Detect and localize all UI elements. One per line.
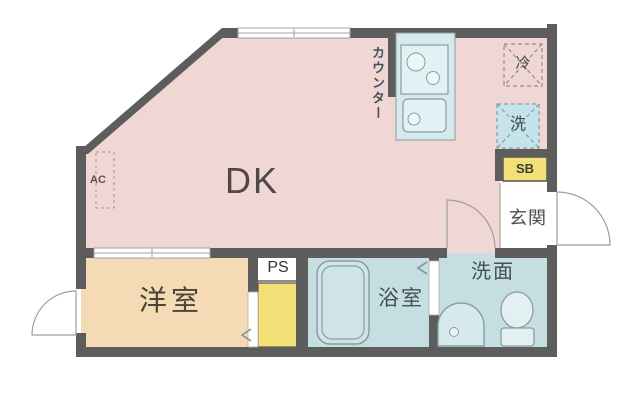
washbasin-drain: [450, 328, 459, 337]
washer-space-label: 洗: [503, 117, 533, 133]
stove-burner-small: [427, 72, 440, 85]
floor-plan-drawing: [0, 0, 640, 405]
washbasin: [438, 303, 484, 346]
washroom-label: 洗面: [458, 262, 528, 282]
kitchen-faucet: [408, 113, 420, 125]
western-room-label: 洋室: [123, 287, 219, 315]
dk-label: DK: [220, 163, 284, 199]
closet-door: [248, 292, 258, 347]
room-dk-floor: [81, 32, 552, 255]
kitchen-stove: [401, 45, 448, 94]
fridge-space-label: 冷: [508, 56, 538, 71]
counter-label: カウンター: [368, 46, 387, 142]
ac-space-label: AC: [85, 175, 111, 186]
entrance-label: 玄関: [498, 209, 558, 227]
western-room-outer-door-arc: [32, 291, 76, 335]
stove-burner-large: [407, 53, 425, 71]
pipe-space-label: PS: [258, 260, 298, 276]
kitchen-unit: [396, 33, 455, 140]
closet-box: [258, 283, 298, 347]
bathroom-label: 浴室: [366, 288, 436, 309]
shoe-box-label: SB: [503, 162, 547, 175]
entrance-door-arc: [557, 192, 610, 245]
toilet: [501, 292, 534, 346]
bathtub: [317, 261, 369, 344]
floor-plan: DK 洋室 浴室 洗面 玄関 PS SB 冷 洗 AC カウンター: [0, 0, 640, 405]
window-top: [238, 28, 350, 38]
sliding-partition-dk-western: [94, 248, 210, 258]
